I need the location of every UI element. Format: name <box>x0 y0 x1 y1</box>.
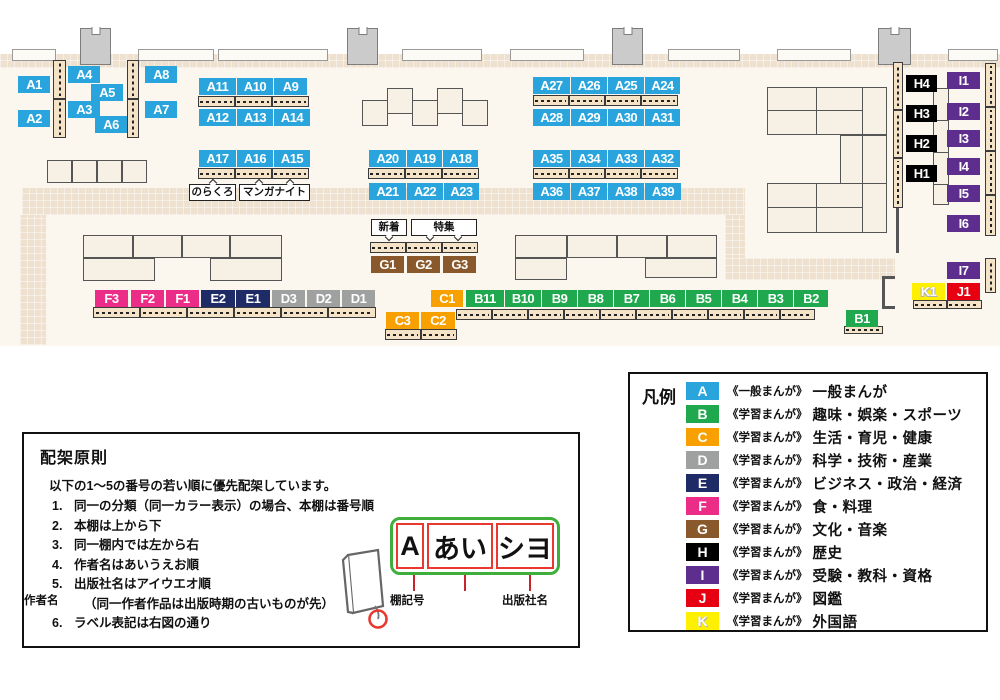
shelf-label-a11: A11 <box>199 78 236 95</box>
principle-item: 2.本棚は上から下 <box>52 517 374 537</box>
bookshelf <box>528 309 564 320</box>
shelf-label-a28: A28 <box>533 109 570 126</box>
legend-series: 《学習まんが》 <box>727 475 808 491</box>
shelf-label-b1: B1 <box>846 310 878 327</box>
table-block <box>230 235 282 258</box>
shelf-label-g1: G1 <box>371 256 404 273</box>
wall-line <box>882 276 895 279</box>
shelf-label-a29: A29 <box>571 109 607 126</box>
shelf-label-a31: A31 <box>645 109 680 126</box>
shelf-label-g2: G2 <box>407 256 440 273</box>
legend-category: 文化・音楽 <box>813 519 888 540</box>
shelf-label-b2: B2 <box>794 290 828 307</box>
shelf-label-a24: A24 <box>645 77 680 94</box>
label-shelf-code: A <box>396 523 424 569</box>
shelf-label-e1: E1 <box>236 290 270 307</box>
shelf-label-a6: A6 <box>95 116 127 133</box>
bookshelf <box>985 63 996 107</box>
window <box>510 49 584 61</box>
shelf-label-g3: G3 <box>443 256 476 273</box>
principle-number: 1. <box>52 497 74 517</box>
bookshelf <box>53 60 66 99</box>
legend-series: 《一般まんが》 <box>727 383 808 399</box>
diagram-label-shelf-code: 棚記号 <box>390 592 425 608</box>
legend-row: G《学習まんが》文化・音楽 <box>686 520 963 538</box>
bookshelf <box>533 95 569 106</box>
carpet-walkway <box>20 215 46 345</box>
bookshelf <box>235 96 272 107</box>
shelf-label-a27: A27 <box>533 77 570 94</box>
bookshelf <box>53 99 66 138</box>
diagram-label-publisher: 出版社名 <box>502 592 548 608</box>
legend-chip-a: A <box>686 382 719 400</box>
legend-chip-b: B <box>686 405 719 423</box>
shelf-label-a22: A22 <box>407 183 443 200</box>
bookshelf <box>370 242 406 253</box>
principles-panel: 配架原則 以下の1～5の番号の若い順に優先配架しています。 1.同一の分類（同一… <box>22 432 580 648</box>
shelf-label-a5: A5 <box>91 84 123 101</box>
table-block <box>83 258 155 281</box>
table-block <box>437 88 463 114</box>
bookshelf <box>235 168 272 179</box>
principle-item: 3.同一棚内では左から右 <box>52 536 374 556</box>
table-block <box>387 88 413 114</box>
legend-row: B《学習まんが》趣味・娯楽・スポーツ <box>686 405 963 423</box>
principle-text: 同一の分類（同一カラー表示）の場合、本棚は番号順 <box>74 497 374 517</box>
bookshelf <box>198 168 235 179</box>
bookshelf <box>780 309 815 320</box>
bookshelf <box>893 110 903 158</box>
bookshelf <box>708 309 744 320</box>
legend-chip-c: C <box>686 428 719 446</box>
shelf-label-i2: I2 <box>947 103 980 120</box>
shelf-label-a21: A21 <box>369 183 406 200</box>
bookshelf <box>985 151 996 195</box>
legend-category: 趣味・娯楽・スポーツ <box>813 404 963 425</box>
window <box>948 49 998 61</box>
shelf-label-a13: A13 <box>237 109 273 126</box>
bookshelf <box>844 326 883 334</box>
legend-category: ビジネス・政治・経済 <box>813 473 963 494</box>
bookshelf <box>234 307 281 318</box>
shelf-label-a2: A2 <box>18 110 50 127</box>
shelf-label-a17: A17 <box>199 150 236 167</box>
shelf-label-b5: B5 <box>686 290 721 307</box>
legend-series: 《学習まんが》 <box>727 406 808 422</box>
table-block <box>840 135 863 184</box>
bookshelf <box>405 168 442 179</box>
principle-item: 4.作者名はあいうえお順 <box>52 556 374 576</box>
shelf-label-a18: A18 <box>443 150 478 167</box>
shelf-label-b9: B9 <box>542 290 577 307</box>
legend-row: I《学習まんが》受験・教科・資格 <box>686 566 963 584</box>
shelf-label-a19: A19 <box>407 150 442 167</box>
bookshelf <box>328 307 376 318</box>
shelf-label-b4: B4 <box>722 290 757 307</box>
pillar-notch <box>890 27 899 35</box>
bookshelf <box>893 62 903 110</box>
legend-chip-g: G <box>686 520 719 538</box>
window <box>138 49 214 61</box>
legend-series: 《学習まんが》 <box>727 498 808 514</box>
legend-series: 《学習まんが》 <box>727 613 808 629</box>
table-block <box>122 160 147 183</box>
map-callout: のらくろ <box>189 184 236 201</box>
window <box>668 49 740 61</box>
bookshelf <box>456 309 492 320</box>
bookshelf <box>385 329 421 340</box>
floor-map-page: A1A2A4A5A3A6A8A7A11A10A9A12A13A14A17A16A… <box>0 0 1000 700</box>
window <box>218 49 328 61</box>
bookshelf <box>985 258 996 293</box>
legend-series: 《学習まんが》 <box>727 567 808 583</box>
table-block <box>767 183 817 208</box>
shelf-label-a4: A4 <box>68 66 100 83</box>
wall-line <box>896 205 899 253</box>
bookshelf <box>636 309 672 320</box>
shelf-label-h1: H1 <box>906 165 937 182</box>
bookshelf <box>140 307 187 318</box>
pointer-line <box>464 575 466 591</box>
shelf-label-i6: I6 <box>947 215 980 232</box>
legend-panel: 凡例 A《一般まんが》一般まんがB《学習まんが》趣味・娯楽・スポーツC《学習まん… <box>628 372 988 632</box>
principle-number: 3. <box>52 536 74 556</box>
shelf-label-i7: I7 <box>947 262 980 279</box>
bookshelf <box>272 96 309 107</box>
shelf-label-a33: A33 <box>608 150 644 167</box>
label-publisher: シヨ <box>496 523 554 569</box>
principle-item: （同一作者作品は出版時期の古いものが先） <box>52 595 374 615</box>
shelf-label-a10: A10 <box>237 78 273 95</box>
legend-row: K《学習まんが》外国語 <box>686 612 963 630</box>
shelf-label-i4: I4 <box>947 158 980 175</box>
legend-chip-i: I <box>686 566 719 584</box>
shelf-label-f1: F1 <box>166 290 199 307</box>
table-block <box>462 100 488 126</box>
principle-text: ラベル表記は右図の通り <box>74 614 212 634</box>
bookshelf <box>198 96 235 107</box>
table-block <box>816 87 863 111</box>
principles-list: 1.同一の分類（同一カラー表示）の場合、本棚は番号順2.本棚は上から下3.同一棚… <box>52 497 374 634</box>
legend-category: 科学・技術・産業 <box>813 450 933 471</box>
legend-title: 凡例 <box>642 381 686 630</box>
label-example-frame: A あい シヨ <box>390 517 560 575</box>
shelf-label-a7: A7 <box>145 101 177 118</box>
bookshelf <box>93 307 140 318</box>
bookshelf <box>605 168 641 179</box>
table-block <box>767 110 817 135</box>
shelf-label-a39: A39 <box>645 183 681 200</box>
principle-number: 4. <box>52 556 74 576</box>
pillar <box>878 28 911 65</box>
table-block <box>816 207 863 233</box>
principle-number: 6. <box>52 614 74 634</box>
table-block <box>617 235 667 258</box>
table-block <box>362 100 388 126</box>
shelf-label-h3: H3 <box>906 105 937 122</box>
table-block <box>97 160 122 183</box>
shelf-label-e2: E2 <box>201 290 235 307</box>
legend-row: H《学習まんが》歴史 <box>686 543 963 561</box>
shelf-label-h2: H2 <box>906 135 937 152</box>
bookshelf <box>605 95 641 106</box>
shelf-label-a8: A8 <box>145 66 177 83</box>
legend-category: 食・料理 <box>813 496 873 517</box>
bookshelf <box>985 195 996 236</box>
legend-series: 《学習まんが》 <box>727 590 808 606</box>
legend-chip-j: J <box>686 589 719 607</box>
legend-row: J《学習まんが》図鑑 <box>686 589 963 607</box>
bookshelf <box>127 99 139 138</box>
table-block <box>133 235 182 258</box>
table-block <box>412 100 438 126</box>
legend-row: C《学習まんが》生活・育児・健康 <box>686 428 963 446</box>
legend-series: 《学習まんが》 <box>727 544 808 560</box>
legend-chip-h: H <box>686 543 719 561</box>
shelf-label-a9: A9 <box>274 78 307 95</box>
pointer-line <box>413 575 415 591</box>
table-block <box>515 235 567 258</box>
principle-number: 2. <box>52 517 74 537</box>
table-block <box>767 87 817 111</box>
shelf-label-a20: A20 <box>369 150 406 167</box>
shelf-label-a25: A25 <box>608 77 644 94</box>
table-block <box>72 160 97 183</box>
carpet-walkway <box>725 215 745 262</box>
principle-item: 1.同一の分類（同一カラー表示）の場合、本棚は番号順 <box>52 497 374 517</box>
shelf-label-b6: B6 <box>650 290 685 307</box>
shelf-label-b3: B3 <box>758 290 793 307</box>
bookshelf <box>272 168 309 179</box>
bookshelf <box>533 168 569 179</box>
principle-text: 出版社名はアイウエオ順 <box>74 575 211 595</box>
table-block <box>667 235 717 258</box>
book-illustration <box>332 546 394 635</box>
shelf-label-f3: F3 <box>95 290 128 307</box>
table-block <box>83 235 133 258</box>
label-author: あい <box>427 523 493 569</box>
bookshelf <box>641 168 678 179</box>
shelf-label-b7: B7 <box>614 290 649 307</box>
legend-chip-e: E <box>686 474 719 492</box>
shelf-label-a14: A14 <box>274 109 310 126</box>
principle-text: 作者名はあいうえお順 <box>74 556 199 576</box>
table-block <box>645 258 717 278</box>
table-block <box>47 160 72 183</box>
wall-line <box>882 306 895 309</box>
bookshelf <box>421 329 457 340</box>
bookshelf <box>744 309 780 320</box>
table-block <box>515 258 567 280</box>
shelf-label-b8: B8 <box>578 290 613 307</box>
bookshelf <box>641 95 678 106</box>
bookshelf <box>913 300 947 309</box>
principle-text: 同一棚内では左から右 <box>74 536 199 556</box>
shelf-label-a1: A1 <box>18 76 50 93</box>
legend-row: F《学習まんが》食・料理 <box>686 497 963 515</box>
bookshelf <box>600 309 636 320</box>
table-block <box>816 183 863 208</box>
shelf-label-a12: A12 <box>199 109 236 126</box>
legend-rows: A《一般まんが》一般まんがB《学習まんが》趣味・娯楽・スポーツC《学習まんが》生… <box>686 381 963 630</box>
legend-category: 一般まんが <box>813 381 888 402</box>
shelf-label-b11: B11 <box>466 290 504 307</box>
table-block <box>862 87 887 135</box>
bookshelf <box>442 242 478 253</box>
shelf-label-i5: I5 <box>947 185 980 202</box>
pillar <box>347 28 378 65</box>
bookshelf <box>281 307 328 318</box>
bookshelf <box>368 168 405 179</box>
shelf-label-d3: D3 <box>272 290 305 307</box>
shelf-label-d2: D2 <box>307 290 340 307</box>
principle-item: 5.出版社名はアイウエオ順 <box>52 575 374 595</box>
map-callout: マンガナイト <box>239 184 310 201</box>
legend-series: 《学習まんが》 <box>727 521 808 537</box>
table-block <box>862 135 887 184</box>
legend-row: D《学習まんが》科学・技術・産業 <box>686 451 963 469</box>
legend-category: 受験・教科・資格 <box>813 565 933 586</box>
legend-chip-k: K <box>686 612 719 630</box>
bookshelf <box>893 158 903 208</box>
principles-title: 配架原則 <box>40 444 108 468</box>
bookshelf <box>672 309 708 320</box>
shelf-label-k1: K1 <box>912 283 945 300</box>
carpet-walkway <box>725 258 895 280</box>
bookshelf <box>442 168 479 179</box>
window <box>402 49 482 61</box>
legend-category: 生活・育児・健康 <box>813 427 933 448</box>
bookshelf <box>947 300 982 309</box>
map-callout: 特集 <box>411 219 477 236</box>
shelf-label-a34: A34 <box>571 150 607 167</box>
shelf-label-i1: I1 <box>947 72 980 89</box>
pillar-notch <box>91 27 100 35</box>
pillar-notch <box>358 27 367 35</box>
shelf-label-d1: D1 <box>342 290 375 307</box>
shelf-label-a36: A36 <box>533 183 570 200</box>
legend-category: 歴史 <box>813 542 843 563</box>
principle-text: （同一作者作品は出版時期の古いものが先） <box>74 595 334 615</box>
legend-chip-d: D <box>686 451 719 469</box>
diagram-label-author: 作者名 <box>24 592 59 608</box>
shelf-label-a35: A35 <box>533 150 570 167</box>
table-block <box>816 110 863 135</box>
principles-intro: 以下の1～5の番号の若い順に優先配架しています。 <box>49 475 336 494</box>
shelf-label-a32: A32 <box>645 150 680 167</box>
bookshelf <box>406 242 442 253</box>
table-block <box>567 235 617 258</box>
legend-row: E《学習まんが》ビジネス・政治・経済 <box>686 474 963 492</box>
pillar <box>80 28 111 65</box>
shelf-label-c2: C2 <box>421 312 455 329</box>
principle-text: 本棚は上から下 <box>74 517 162 537</box>
shelf-label-c1: C1 <box>431 290 463 307</box>
shelf-label-h4: H4 <box>906 75 937 92</box>
bookshelf <box>492 309 528 320</box>
shelf-label-a30: A30 <box>608 109 644 126</box>
pointer-line <box>529 575 531 591</box>
bookshelf <box>569 95 605 106</box>
pillar <box>612 28 643 65</box>
table-block <box>210 258 282 281</box>
legend-category: 図鑑 <box>813 588 843 609</box>
legend-category: 外国語 <box>813 611 858 632</box>
bookshelf <box>985 107 996 151</box>
legend-row: A《一般まんが》一般まんが <box>686 382 963 400</box>
legend-chip-f: F <box>686 497 719 515</box>
shelf-label-f2: F2 <box>131 290 164 307</box>
legend-series: 《学習まんが》 <box>727 452 808 468</box>
shelf-label-b10: B10 <box>505 290 541 307</box>
shelf-label-a37: A37 <box>571 183 607 200</box>
shelf-label-j1: J1 <box>947 283 980 300</box>
wall-line <box>882 276 885 309</box>
legend-series: 《学習まんが》 <box>727 429 808 445</box>
table-block <box>862 183 887 233</box>
shelf-label-a15: A15 <box>274 150 310 167</box>
window <box>777 49 851 61</box>
bookshelf <box>569 168 605 179</box>
pillar-notch <box>623 27 632 35</box>
shelf-label-a23: A23 <box>444 183 479 200</box>
bookshelf <box>127 60 139 99</box>
table-block <box>767 207 817 233</box>
principle-item: 6.ラベル表記は右図の通り <box>52 614 374 634</box>
shelf-label-c3: C3 <box>386 312 419 329</box>
map-callout: 新着 <box>371 219 407 236</box>
shelf-label-a16: A16 <box>237 150 273 167</box>
window <box>12 49 56 61</box>
bookshelf <box>564 309 600 320</box>
shelf-label-i3: I3 <box>947 130 980 147</box>
bookshelf <box>187 307 234 318</box>
shelf-label-a38: A38 <box>608 183 644 200</box>
shelf-label-a26: A26 <box>571 77 607 94</box>
table-block <box>182 235 230 258</box>
